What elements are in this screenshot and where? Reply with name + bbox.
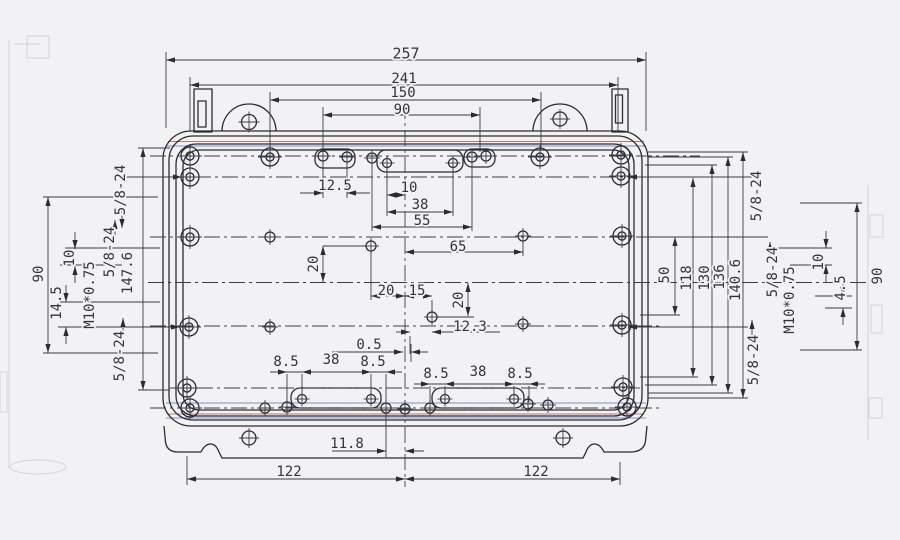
dim-label-dim-55: 55: [414, 213, 431, 229]
dim-label-dim-140p6: 140.6: [728, 259, 744, 301]
dim-label-dim-8p5-a: 8.5: [273, 354, 298, 370]
dim-label-dim-122-r: 122: [523, 464, 548, 480]
dim-label-dim-10-right: 10: [811, 254, 827, 271]
dim-label-dim-50: 50: [657, 267, 673, 284]
dim-label-dim-118: 118: [679, 265, 695, 290]
dim-label-dim-10-left: 10: [62, 250, 78, 267]
dim-label-dim-38-br: 38: [470, 364, 487, 380]
center-lines: [148, 103, 868, 487]
dim-label-dim-20-a: 20: [306, 256, 322, 273]
dim-label-dim-8p5-d: 8.5: [507, 366, 532, 382]
dim-label-thread-l-mid: 5/8-24: [102, 227, 118, 278]
drawing-page: 2572411509012.5103855652020152012.30.58.…: [0, 0, 900, 540]
dim-label-dim-8p5-b: 8.5: [360, 354, 385, 370]
dim-label-dim-90-right: 90: [870, 268, 886, 285]
dim-label-thread-r-top: 5/8-24: [749, 171, 765, 222]
dim-label-thread-r-m10: M10*0.75: [782, 266, 798, 333]
dim-label-dim-12p3: 12.3: [453, 319, 487, 335]
dim-label-dim-8p5-c: 8.5: [423, 366, 448, 382]
dim-label-dim-4p5: 4.5: [833, 275, 849, 300]
dim-label-dim-14p5: 14.5: [49, 286, 65, 320]
dim-label-dim-150: 150: [390, 85, 415, 101]
dim-label-dim-11p8: 11.8: [330, 436, 364, 452]
dim-label-thread-l-m10: M10*0.75: [82, 261, 98, 328]
dim-label-dim-10-top: 10: [401, 180, 418, 196]
dim-label-dim-90-top: 90: [394, 102, 411, 118]
engineering-drawing: 2572411509012.5103855652020152012.30.58.…: [0, 0, 900, 540]
dim-label-dim-15: 15: [409, 283, 426, 299]
dim-label-dim-122-l: 122: [276, 464, 301, 480]
dim-label-dim-20-b: 20: [378, 283, 395, 299]
dim-label-dim-20-c: 20: [451, 292, 467, 309]
dim-label-dim-257: 257: [392, 45, 419, 63]
dim-label-dim-12p5: 12.5: [318, 178, 352, 194]
dim-label-dim-136: 136: [712, 264, 728, 289]
dimension-labels: 2572411509012.5103855652020152012.30.58.…: [31, 45, 886, 481]
dim-label-dim-0p5: 0.5: [356, 337, 381, 353]
dim-label-dim-38-bl: 38: [323, 352, 340, 368]
dim-label-thread-l-top: 5/8-24: [113, 165, 129, 216]
dim-label-dim-38-top: 38: [412, 197, 429, 213]
dim-label-dim-130: 130: [697, 265, 713, 290]
dim-label-dim-147p6: 147.6: [120, 252, 136, 294]
dim-label-thread-l-bot: 5/8-24: [112, 331, 128, 382]
drill-holes: [175, 109, 639, 448]
dim-label-thread-r-mid: 5/8-24: [765, 247, 781, 298]
dim-label-dim-65: 65: [450, 239, 467, 255]
dim-label-dim-90-left: 90: [31, 266, 47, 283]
dim-label-thread-r-bot: 5/8-24: [746, 335, 762, 386]
